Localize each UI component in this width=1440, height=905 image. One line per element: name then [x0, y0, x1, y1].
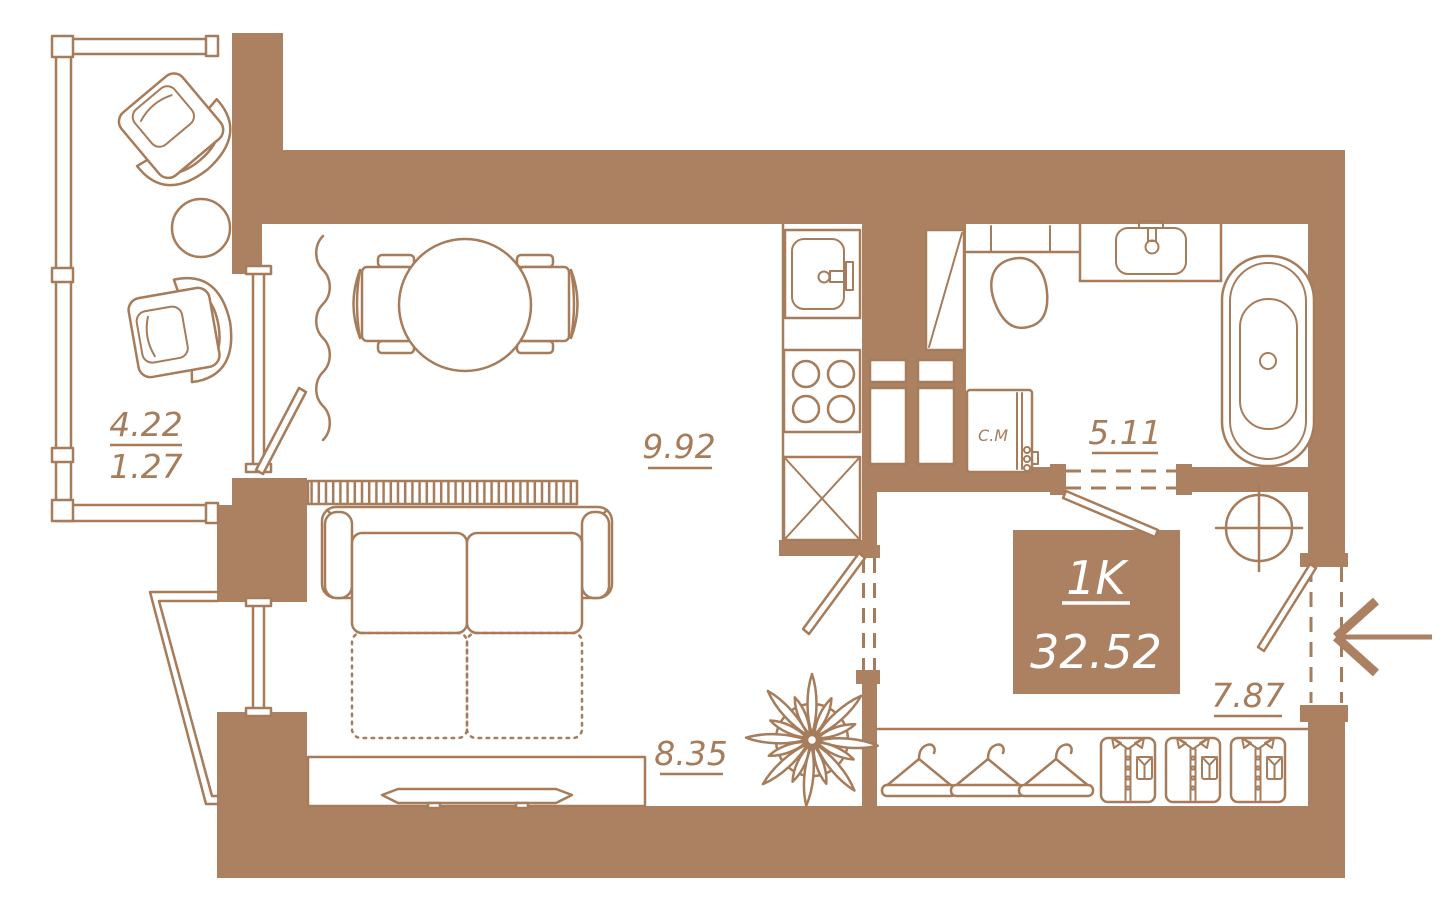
plant-icon — [746, 674, 878, 806]
tv-stand — [308, 757, 645, 808]
bathroom: С.М 5.11 — [966, 221, 1314, 472]
curtain-icon — [316, 236, 330, 440]
hall-door-leaf — [803, 553, 865, 634]
unit-type-label: 1K — [1066, 551, 1129, 605]
shirt-icon — [1101, 738, 1155, 802]
bathroom-area-label: 5.11 — [1088, 413, 1161, 452]
sofa — [322, 507, 612, 738]
tv-icon — [382, 789, 572, 803]
dining-table — [399, 239, 531, 371]
sofa-bed-extension — [352, 633, 467, 738]
entry-arrow-icon — [1336, 601, 1432, 673]
floor-plan: 4.22 1.27 9.92 — [0, 0, 1440, 905]
bathtub — [1222, 256, 1314, 466]
balcony-window — [246, 266, 271, 472]
side-table — [172, 199, 230, 257]
sofa-bed-extension — [467, 633, 582, 738]
unit-total-area-label: 32.52 — [1030, 625, 1162, 679]
washing-machine-label: С.М — [978, 426, 1008, 445]
left-window — [246, 598, 271, 716]
armchair-icon — [105, 61, 248, 203]
bay-window — [150, 592, 218, 804]
unit-info-box: 1K 32.52 — [1013, 530, 1180, 694]
entry-door-leaf — [1258, 564, 1316, 651]
ceiling-light-icon — [1216, 485, 1302, 571]
living-zone-area-label: 8.35 — [654, 734, 727, 773]
washbasin — [1080, 221, 1221, 281]
shirt-icon — [1231, 738, 1285, 802]
kitchen-sink — [785, 230, 860, 318]
cabinet-x-icon — [784, 457, 860, 540]
radiator — [308, 481, 577, 504]
floor-plan-canvas: 4.22 1.27 9.92 — [0, 0, 1440, 905]
hall-door-opening — [864, 558, 875, 670]
hanger-icon — [882, 745, 956, 796]
balcony-area-label: 4.22 — [109, 405, 182, 444]
bathroom-door-opening — [1066, 471, 1176, 488]
washing-machine: С.М — [967, 390, 1038, 472]
balcony-area-coeff-label: 1.27 — [109, 447, 182, 486]
kitchen — [783, 224, 860, 540]
hanger-icon — [951, 745, 1025, 796]
shirt-icon — [1166, 738, 1220, 802]
wardrobe — [877, 729, 1308, 802]
hallway: 1K 32.52 7.87 — [877, 485, 1308, 802]
stove — [784, 350, 860, 432]
kitchen-living-area-label: 9.92 — [642, 427, 715, 466]
hanger-icon — [1019, 745, 1093, 796]
toilet — [966, 226, 1078, 334]
hallway-area-label: 7.87 — [1211, 676, 1284, 715]
armchair-icon — [125, 271, 240, 391]
